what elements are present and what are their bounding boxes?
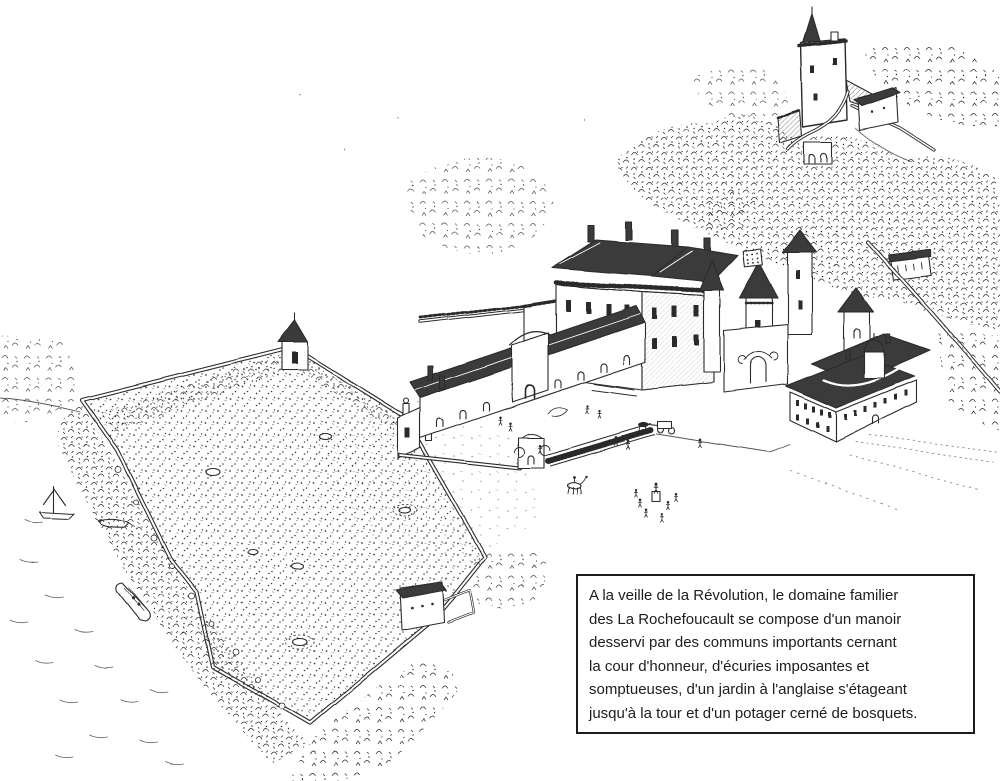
garden-house — [396, 582, 474, 630]
entrance-gate — [514, 434, 550, 468]
garden-pavilion — [278, 313, 308, 370]
caption-line: la cour d'honneur, d'écuries imposantes … — [589, 655, 973, 679]
statue-group — [634, 483, 677, 522]
caption-box: A la veille de la Révolution, le domaine… — [576, 574, 975, 734]
caption-line: des La Rochefoucault se compose d'un man… — [589, 608, 973, 632]
corner-tower — [783, 230, 817, 334]
caption-line: jusqu'à la tour et d'un potager cerné de… — [589, 702, 973, 726]
sailboat-icon — [40, 486, 74, 519]
right-wing — [786, 334, 930, 442]
engraving-page: A la veille de la Révolution, le domaine… — [0, 0, 1000, 781]
dovecote — [743, 249, 763, 267]
balustrade — [546, 424, 654, 466]
caption-line: A la veille de la Révolution, le domaine… — [589, 584, 973, 608]
baroque-portal — [724, 324, 788, 392]
caption-line: desservi par des communs importants cern… — [589, 631, 973, 655]
caption-line: somptueuses, d'un jardin à l'anglaise s'… — [589, 678, 973, 702]
horseman — [568, 476, 588, 494]
